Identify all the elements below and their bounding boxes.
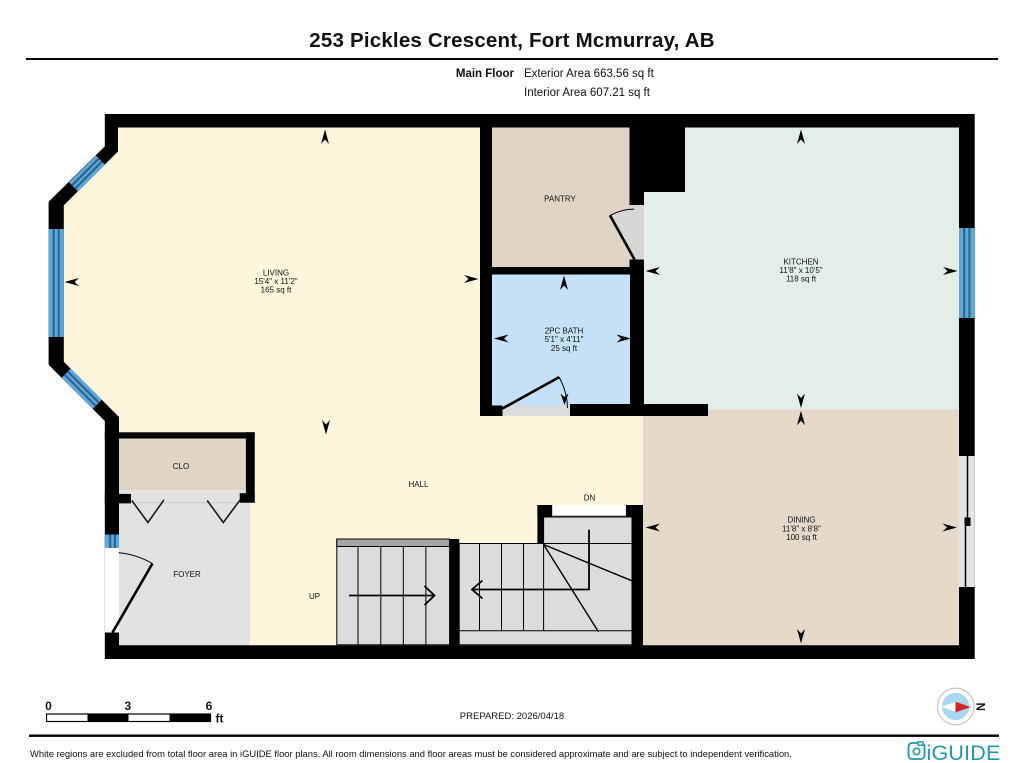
svg-text:LIVING: LIVING <box>263 268 289 277</box>
svg-text:HALL: HALL <box>408 480 429 489</box>
svg-text:25 sq ft: 25 sq ft <box>551 344 578 353</box>
svg-text:3: 3 <box>124 699 131 713</box>
svg-text:118 sq ft: 118 sq ft <box>786 275 817 284</box>
svg-text:253 Pickles Crescent, Fort Mcm: 253 Pickles Crescent, Fort Mcmurray, AB <box>309 29 714 52</box>
svg-text:DINING: DINING <box>788 515 816 524</box>
svg-text:White regions are excluded fro: White regions are excluded from total fl… <box>30 748 792 759</box>
svg-text:CLO: CLO <box>173 462 189 471</box>
svg-text:0: 0 <box>45 699 52 713</box>
svg-text:5'1" x 4'11": 5'1" x 4'11" <box>545 335 584 344</box>
svg-text:PANTRY: PANTRY <box>544 195 576 204</box>
svg-text:ft: ft <box>216 712 224 726</box>
svg-text:165 sq ft: 165 sq ft <box>261 285 292 294</box>
svg-text:KITCHEN: KITCHEN <box>783 257 818 266</box>
svg-text:Exterior Area 663.56 sq ft: Exterior Area 663.56 sq ft <box>524 68 655 80</box>
svg-text:FOYER: FOYER <box>173 570 201 579</box>
svg-text:DN: DN <box>584 493 596 502</box>
svg-text:iGUIDE: iGUIDE <box>927 741 1001 763</box>
svg-text:UP: UP <box>309 592 320 601</box>
svg-text:Interior Area 607.21 sq ft: Interior Area 607.21 sq ft <box>524 87 651 99</box>
svg-text:N: N <box>974 703 986 711</box>
svg-text:PREPARED: 2026/04/18: PREPARED: 2026/04/18 <box>460 711 564 722</box>
svg-text:6: 6 <box>206 699 213 713</box>
svg-text:11'8" x 8'8": 11'8" x 8'8" <box>782 524 821 533</box>
svg-text:Main Floor: Main Floor <box>456 68 515 80</box>
svg-text:100 sq ft: 100 sq ft <box>786 533 817 542</box>
